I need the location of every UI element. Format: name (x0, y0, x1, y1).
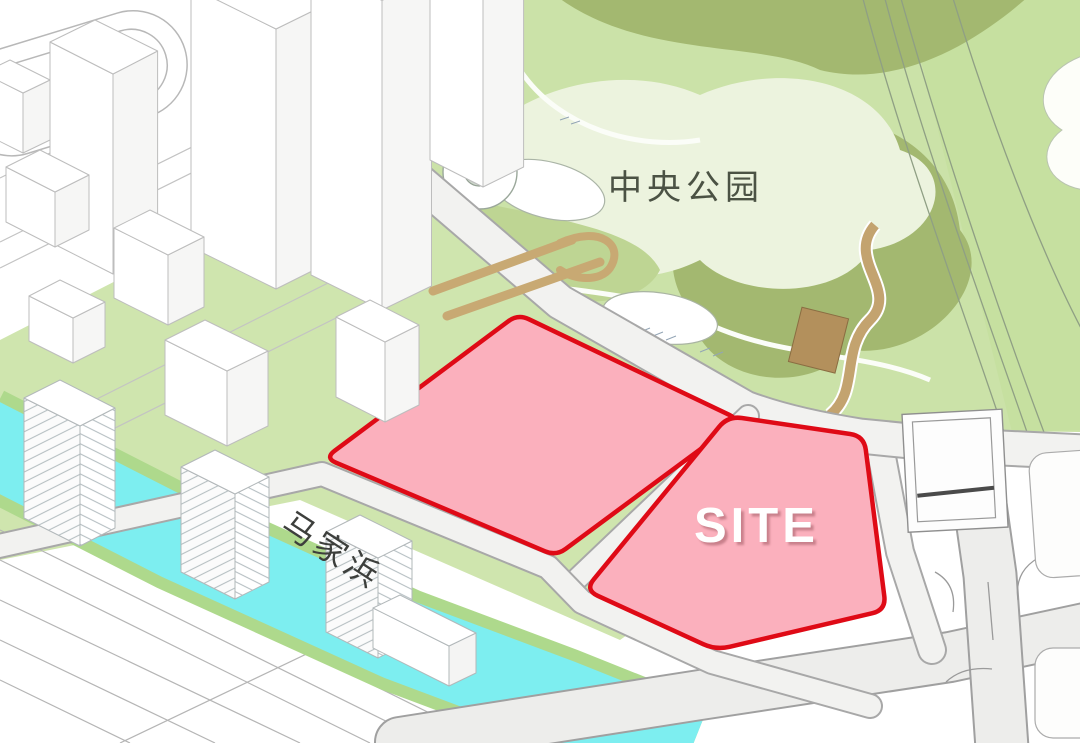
block (336, 300, 419, 422)
riverside-slab (181, 450, 269, 599)
block (0, 60, 50, 153)
tower (191, 0, 330, 289)
site-plan-canvas (0, 0, 1080, 743)
station-pad (902, 409, 1008, 532)
east-block-outline-2 (1035, 648, 1080, 738)
tower (430, 0, 524, 187)
east-block-outline-1 (1028, 448, 1080, 579)
site-plan-image: 中央公园 马家浜 SITE (0, 0, 1080, 743)
riverside-slab (24, 380, 115, 546)
tower (311, 0, 432, 310)
